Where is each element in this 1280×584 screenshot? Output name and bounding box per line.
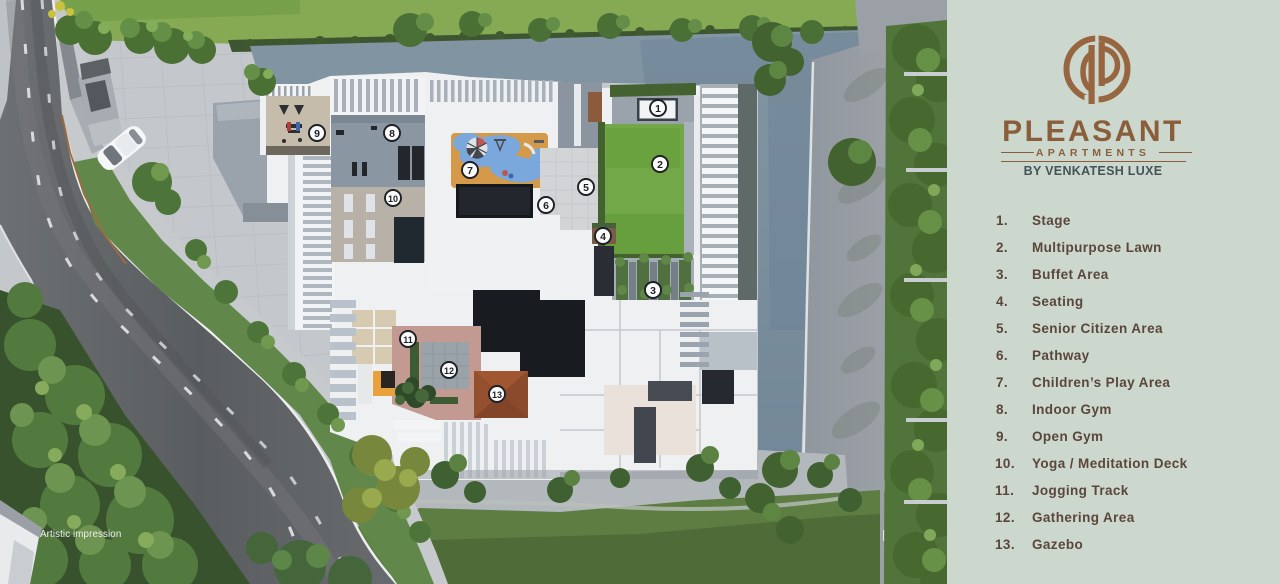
- svg-text:12: 12: [444, 366, 454, 376]
- svg-text:7: 7: [467, 165, 473, 177]
- svg-text:2: 2: [657, 159, 663, 171]
- svg-text:9: 9: [314, 128, 320, 140]
- svg-text:13: 13: [492, 390, 502, 400]
- svg-text:5: 5: [583, 182, 589, 194]
- svg-text:8: 8: [389, 128, 395, 140]
- svg-text:11: 11: [403, 335, 413, 345]
- svg-text:10: 10: [388, 194, 398, 204]
- svg-text:4: 4: [600, 231, 606, 243]
- svg-text:6: 6: [543, 200, 549, 212]
- svg-text:Artistic impression: Artistic impression: [40, 529, 121, 540]
- svg-text:3: 3: [650, 285, 656, 297]
- svg-text:1: 1: [655, 103, 661, 115]
